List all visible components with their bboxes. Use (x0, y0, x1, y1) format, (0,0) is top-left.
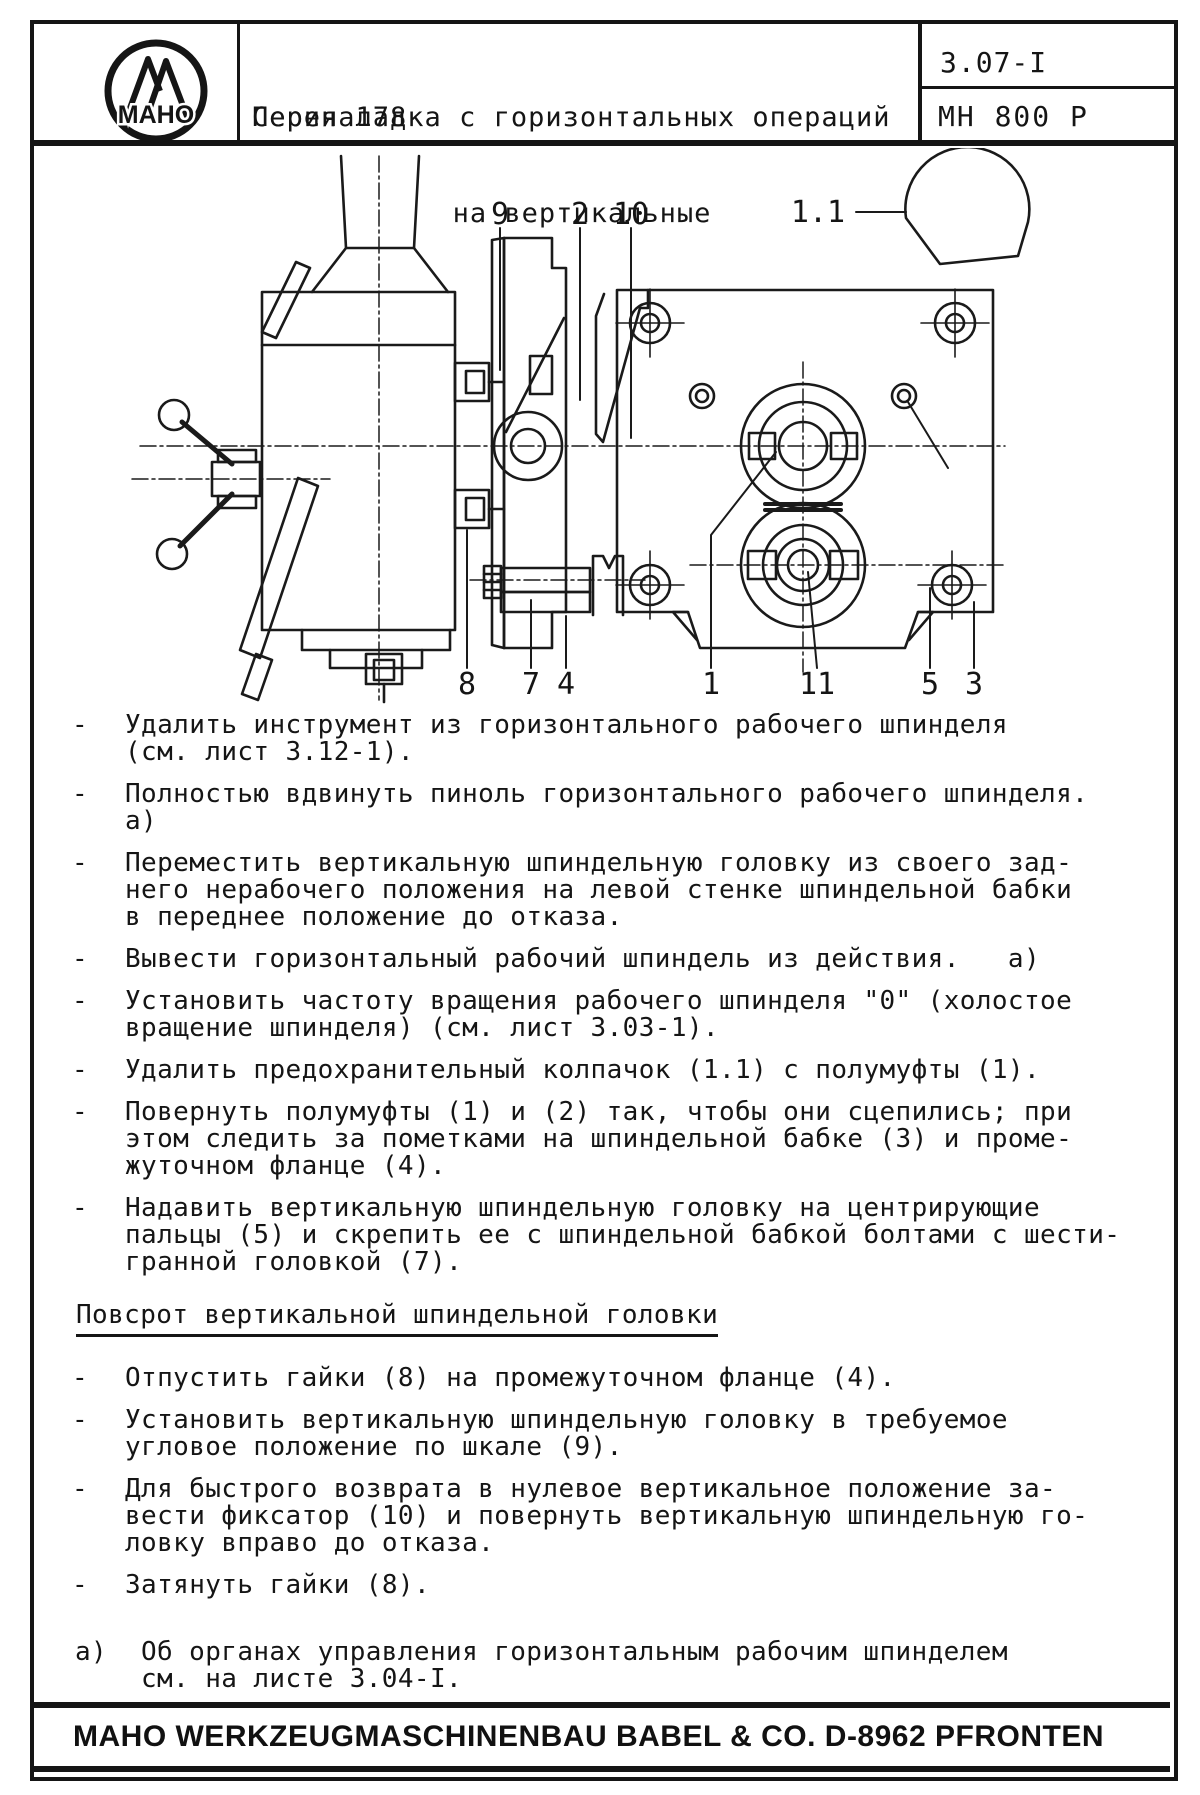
footnote-marker: а) (62, 1639, 141, 1693)
manual-page: MAHO Переналадка с горизонтальных операц… (0, 0, 1200, 1795)
footnote-line: Об органах управления горизонтальным раб… (141, 1639, 1162, 1666)
instruction-item: - Удалить инструмент из горизонтального … (62, 712, 1162, 766)
instruction-item: - Повернуть полумуфты (1) и (2) так, что… (62, 1099, 1162, 1180)
series-label: Серия 178 (252, 102, 407, 133)
instruction-list: - Удалить инструмент из горизонтального … (62, 712, 1162, 1693)
instruction-item: - Отпустить гайки (8) на промежуточном ф… (62, 1365, 1162, 1392)
instruction-line: вести фиксатор (10) и повернуть вертикал… (125, 1503, 1162, 1530)
section-heading: Повсрот вертикальной шпиндельной головки (76, 1302, 1162, 1337)
instruction-line: него нерабочего положения на левой стенк… (125, 877, 1162, 904)
instruction-item: - Надавить вертикальную шпиндельную голо… (62, 1195, 1162, 1276)
instruction-line: Затянуть гайки (8). (125, 1572, 1162, 1599)
instruction-line: Для быстрого возврата в нулевое вертикал… (125, 1476, 1162, 1503)
bullet-dash: - (62, 1407, 125, 1461)
instruction-line: ловку вправо до отказа. (125, 1530, 1162, 1557)
doc-code: 3.07-I (940, 46, 1047, 79)
instruction-line: гранной головкой (7). (125, 1249, 1162, 1276)
instruction-line: жуточном фланце (4). (125, 1153, 1162, 1180)
callout-3: 3 (965, 667, 983, 702)
bullet-dash: - (62, 1057, 125, 1084)
bullet-dash: - (62, 988, 125, 1042)
bullet-dash: - (62, 781, 125, 835)
callout-4: 4 (557, 667, 575, 702)
bullet-dash: - (62, 850, 125, 931)
bullet-dash: - (62, 712, 125, 766)
callout-7: 7 (522, 667, 540, 702)
instruction-line: Вывести горизонтальный рабочий шпиндель … (125, 946, 1162, 973)
instruction-item: - Вывести горизонтальный рабочий шпиндел… (62, 946, 1162, 973)
maho-logo: MAHO (100, 35, 212, 147)
bullet-dash: - (62, 1099, 125, 1180)
instruction-line: Удалить инструмент из горизонтального ра… (125, 712, 1162, 739)
callout-1: 1 (702, 667, 720, 702)
header-divider-right (918, 22, 922, 140)
instruction-line: Отпустить гайки (8) на промежуточном фла… (125, 1365, 1162, 1392)
header-cell-divider (922, 86, 1174, 89)
footnote-line: см. на листе 3.04-I. (141, 1666, 1162, 1693)
callout-5: 5 (921, 667, 939, 702)
section-heading-text: Повсрот вертикальной шпиндельной головки (76, 1302, 718, 1337)
instruction-line: Установить частоту вращения рабочего шпи… (125, 988, 1162, 1015)
instruction-line: этом следить за пометками на шпиндельной… (125, 1126, 1162, 1153)
instruction-item: - Полностью вдвинуть пиноль горизонтальн… (62, 781, 1162, 835)
bullet-dash: - (62, 1476, 125, 1557)
instruction-item: - Для быстрого возврата в нулевое вертик… (62, 1476, 1162, 1557)
instruction-line: Удалить предохранительный колпачок (1.1)… (125, 1057, 1162, 1084)
footer-company: MAHO WERKZEUGMASCHINENBAU BABEL & CO. D-… (30, 1720, 1104, 1754)
instruction-line: вращение шпинделя) (см. лист 3.03-1). (125, 1015, 1162, 1042)
callout-1-1: 1.1 (791, 195, 845, 230)
machine-model: MH 800 P (938, 100, 1089, 133)
instruction-line: Установить вертикальную шпиндельную голо… (125, 1407, 1162, 1434)
callout-9: 9 (491, 197, 509, 232)
instruction-line: Повернуть полумуфты (1) и (2) так, чтобы… (125, 1099, 1162, 1126)
bullet-dash: - (62, 1195, 125, 1276)
instruction-item: - Установить вертикальную шпиндельную го… (62, 1407, 1162, 1461)
instruction-line: (см. лист 3.12-1). (125, 739, 1162, 766)
instruction-line: Переместить вертикальную шпиндельную гол… (125, 850, 1162, 877)
header-divider-left (237, 22, 240, 140)
diagram-callouts: 9 2 10 1.1 8 7 4 1 11 5 3 (458, 195, 983, 702)
callout-8: 8 (458, 667, 476, 702)
logo-text: MAHO (118, 101, 194, 129)
bullet-dash: - (62, 946, 125, 973)
instruction-line: Надавить вертикальную шпиндельную головк… (125, 1195, 1162, 1222)
instruction-line: Полностью вдвинуть пиноль горизонтальног… (125, 781, 1162, 808)
footnote: а) Об органах управления горизонтальным … (62, 1639, 1162, 1693)
instruction-item: - Удалить предохранительный колпачок (1.… (62, 1057, 1162, 1084)
callout-10: 10 (613, 197, 649, 232)
instruction-line: угловое положение по шкале (9). (125, 1434, 1162, 1461)
instruction-line: а) (125, 808, 1162, 835)
instruction-item: - Переместить вертикальную шпиндельную г… (62, 850, 1162, 931)
instruction-item: - Установить частоту вращения рабочего ш… (62, 988, 1162, 1042)
instruction-line: пальцы (5) и скрепить ее с шпиндельной б… (125, 1222, 1162, 1249)
instruction-line: в переднее положение до отказа. (125, 904, 1162, 931)
instruction-item: - Затянуть гайки (8). (62, 1572, 1162, 1599)
callout-2: 2 (571, 197, 589, 232)
bullet-dash: - (62, 1365, 125, 1392)
footer-strip: MAHO WERKZEUGMASCHINENBAU BABEL & CO. D-… (30, 1702, 1170, 1772)
callout-11: 11 (799, 667, 835, 702)
machine-diagram: 9 2 10 1.1 8 7 4 1 11 5 3 (30, 148, 1180, 704)
bullet-dash: - (62, 1572, 125, 1599)
